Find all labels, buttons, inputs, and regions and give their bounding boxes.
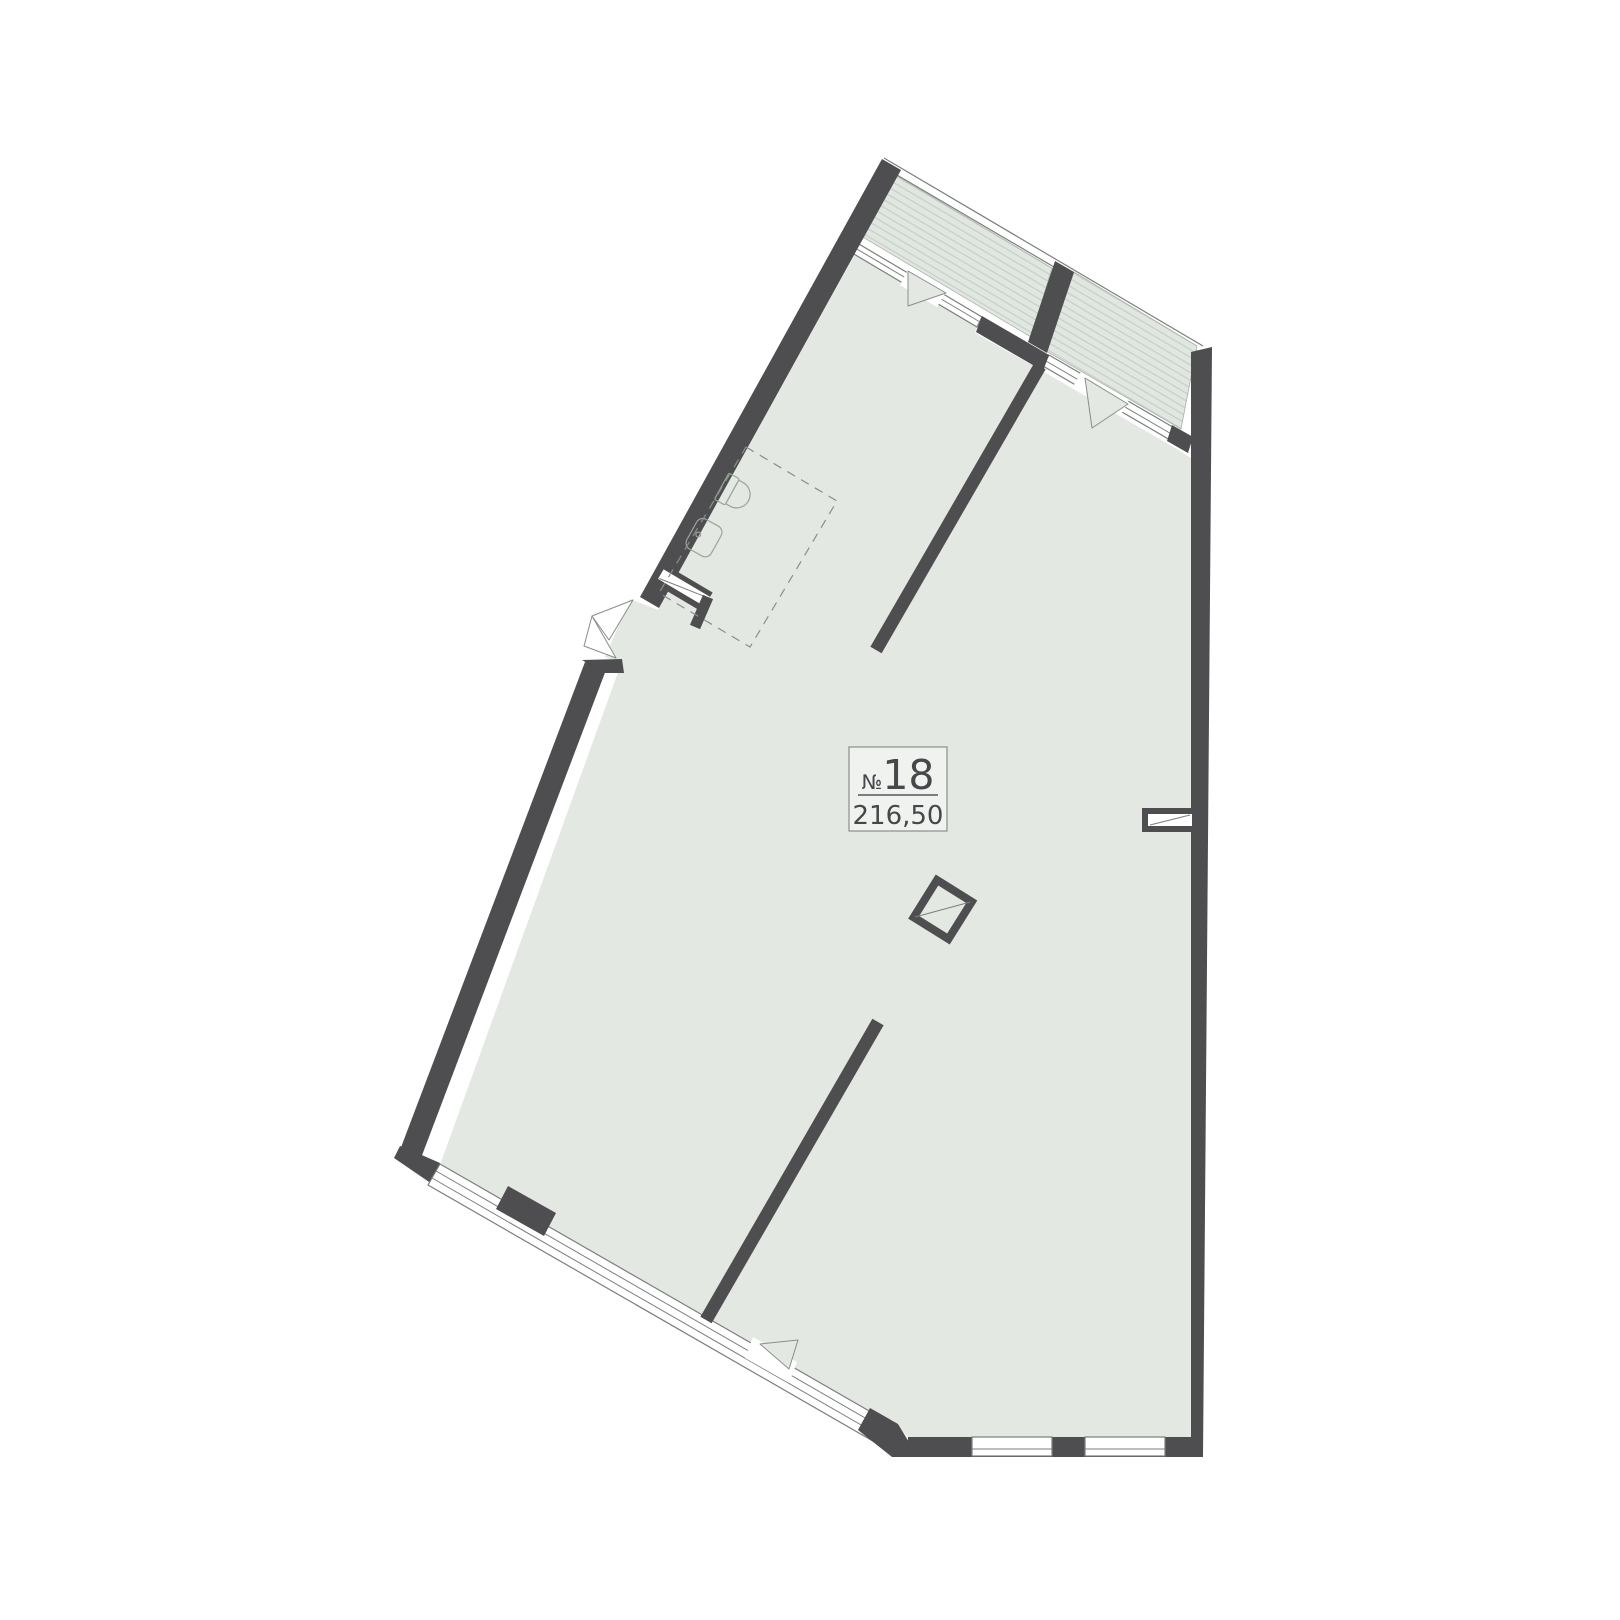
wall-niche-right [1142, 808, 1192, 832]
wall-right [1191, 347, 1212, 1457]
floor-plan-page: №18 216,50 [0, 0, 1620, 1620]
floor-plan-svg: №18 216,50 [0, 0, 1620, 1620]
window-bottom-1 [972, 1437, 1052, 1456]
unit-label-box: №18 216,50 [849, 747, 947, 831]
unit-area: 216,50 [853, 801, 944, 831]
window-bottom-2 [1085, 1437, 1165, 1456]
floor-area [440, 245, 1191, 1437]
